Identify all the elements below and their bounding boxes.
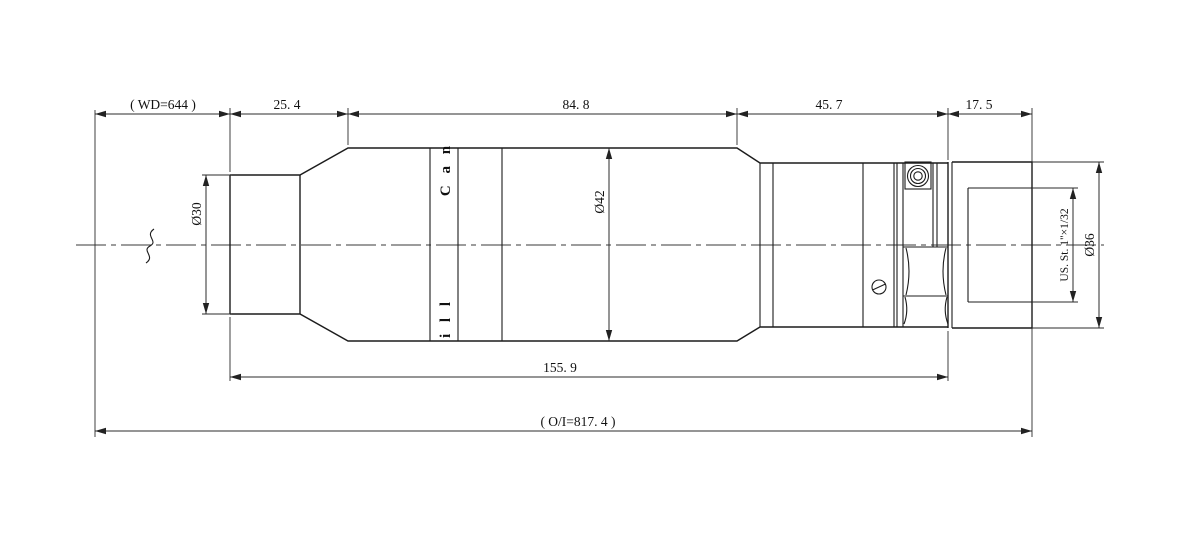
dim-body-diameter-label: Ø42 <box>592 190 607 213</box>
barrel-marking-start: C a n <box>438 142 454 196</box>
dim-working-distance-label: ( WD=644 ) <box>130 97 196 112</box>
dim-front-length: 25. 4 <box>230 97 348 114</box>
dim-mount-length: 17. 5 <box>948 97 1032 114</box>
dim-barrel-length: 155. 9 <box>230 360 948 377</box>
dim-barrel-length-label: 155. 9 <box>543 360 577 375</box>
dim-body-length: 84. 8 <box>348 97 737 114</box>
dim-object-image-distance-label: ( O/I=817. 4 ) <box>540 414 615 429</box>
dim-rear-length-label: 45. 7 <box>816 97 843 112</box>
dim-front-diameter-label: Ø30 <box>189 202 204 225</box>
dim-mount-length-label: 17. 5 <box>966 97 993 112</box>
extension-lines <box>95 108 1032 437</box>
dim-front-length-label: 25. 4 <box>274 97 301 112</box>
set-screw <box>872 280 886 294</box>
clamp-screw <box>905 162 931 189</box>
dim-working-distance: ( WD=644 ) <box>95 97 230 114</box>
dim-mount-diameter-label: Ø36 <box>1082 233 1097 256</box>
dim-body-diameter: Ø42 <box>592 148 609 341</box>
barrel-marking: C a n i l l <box>438 142 454 338</box>
technical-drawing-canvas: C a n i l l ( WD=644 ) 25. 4 84. 8 45. 7… <box>0 0 1200 540</box>
break-symbol <box>146 229 154 263</box>
hex-nut-facets <box>903 247 948 324</box>
drawing-sheet: C a n i l l ( WD=644 ) 25. 4 84. 8 45. 7… <box>0 0 1200 540</box>
dim-object-image-distance: ( O/I=817. 4 ) <box>95 414 1032 431</box>
dim-mount-thread-label: US. St. 1"×1/32 <box>1059 208 1071 281</box>
dim-body-length-label: 84. 8 <box>563 97 590 112</box>
dim-front-diameter: Ø30 <box>189 175 232 314</box>
barrel-marking-end: i l l <box>438 298 454 338</box>
dim-rear-length: 45. 7 <box>737 97 948 114</box>
lens-body-outline <box>230 148 1032 341</box>
